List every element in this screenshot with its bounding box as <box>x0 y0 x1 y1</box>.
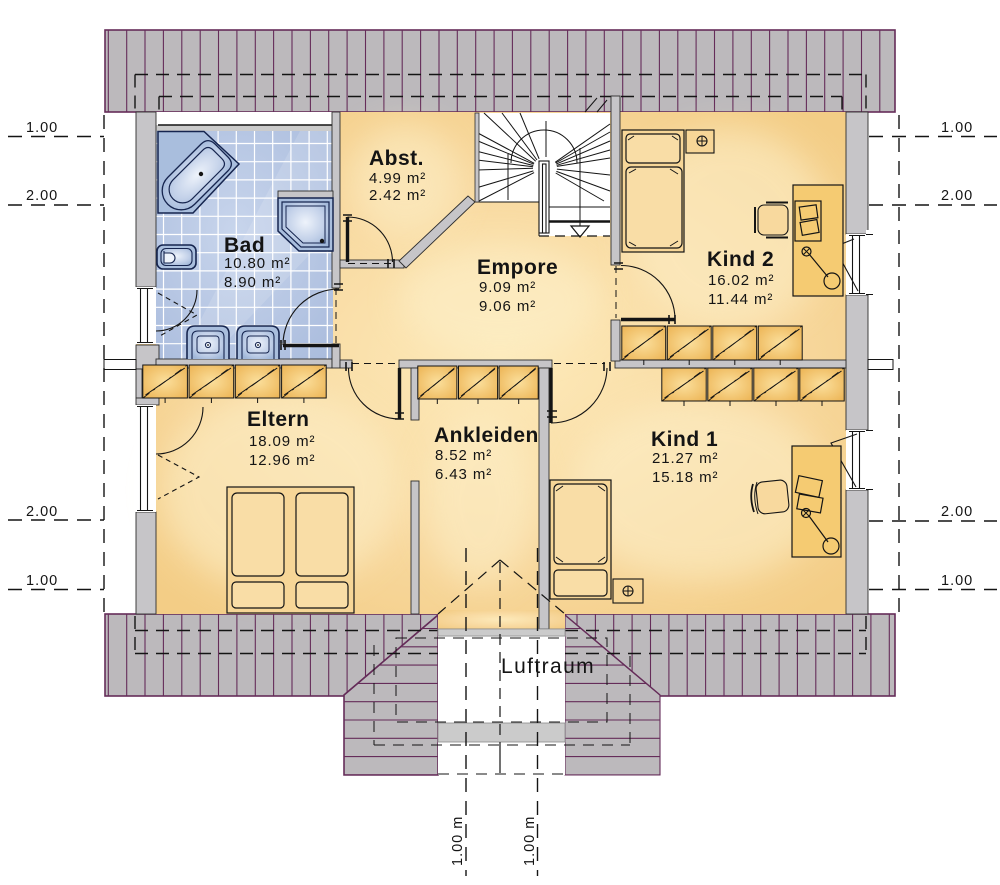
svg-text:1.00: 1.00 <box>941 573 973 589</box>
svg-text:Abst.: Abst. <box>369 147 424 170</box>
svg-text:2.42 m²: 2.42 m² <box>369 187 426 204</box>
svg-text:Empore: Empore <box>477 256 558 279</box>
svg-text:1.00: 1.00 <box>26 120 58 136</box>
svg-text:Eltern: Eltern <box>247 408 310 431</box>
svg-text:1.00: 1.00 <box>941 120 973 136</box>
svg-text:11.44 m²: 11.44 m² <box>708 291 773 308</box>
svg-text:8.90 m²: 8.90 m² <box>224 274 281 291</box>
svg-text:Kind 1: Kind 1 <box>651 428 718 451</box>
svg-text:Bad: Bad <box>224 234 265 257</box>
svg-text:9.06 m²: 9.06 m² <box>479 298 536 315</box>
svg-text:4.99 m²: 4.99 m² <box>369 170 426 187</box>
svg-text:8.52 m²: 8.52 m² <box>435 447 492 464</box>
svg-text:16.02 m²: 16.02 m² <box>708 272 774 289</box>
svg-text:2.00: 2.00 <box>941 504 973 520</box>
svg-text:1.00: 1.00 <box>26 573 58 589</box>
svg-text:Luftraum: Luftraum <box>501 655 595 678</box>
svg-text:Kind 2: Kind 2 <box>707 248 774 271</box>
svg-text:2.00: 2.00 <box>26 504 58 520</box>
svg-text:15.18 m²: 15.18 m² <box>652 469 718 486</box>
svg-text:10.80 m²: 10.80 m² <box>224 255 290 272</box>
svg-text:6.43 m²: 6.43 m² <box>435 466 492 483</box>
svg-text:2.00: 2.00 <box>26 188 58 204</box>
svg-text:1.00 m: 1.00 m <box>450 816 466 866</box>
svg-text:Ankleiden: Ankleiden <box>434 424 539 447</box>
svg-text:1.00 m: 1.00 m <box>522 816 538 866</box>
svg-text:21.27 m²: 21.27 m² <box>652 450 718 467</box>
svg-text:9.09 m²: 9.09 m² <box>479 279 536 296</box>
svg-text:18.09 m²: 18.09 m² <box>249 433 315 450</box>
svg-text:12.96 m²: 12.96 m² <box>249 452 315 469</box>
svg-text:2.00: 2.00 <box>941 188 973 204</box>
